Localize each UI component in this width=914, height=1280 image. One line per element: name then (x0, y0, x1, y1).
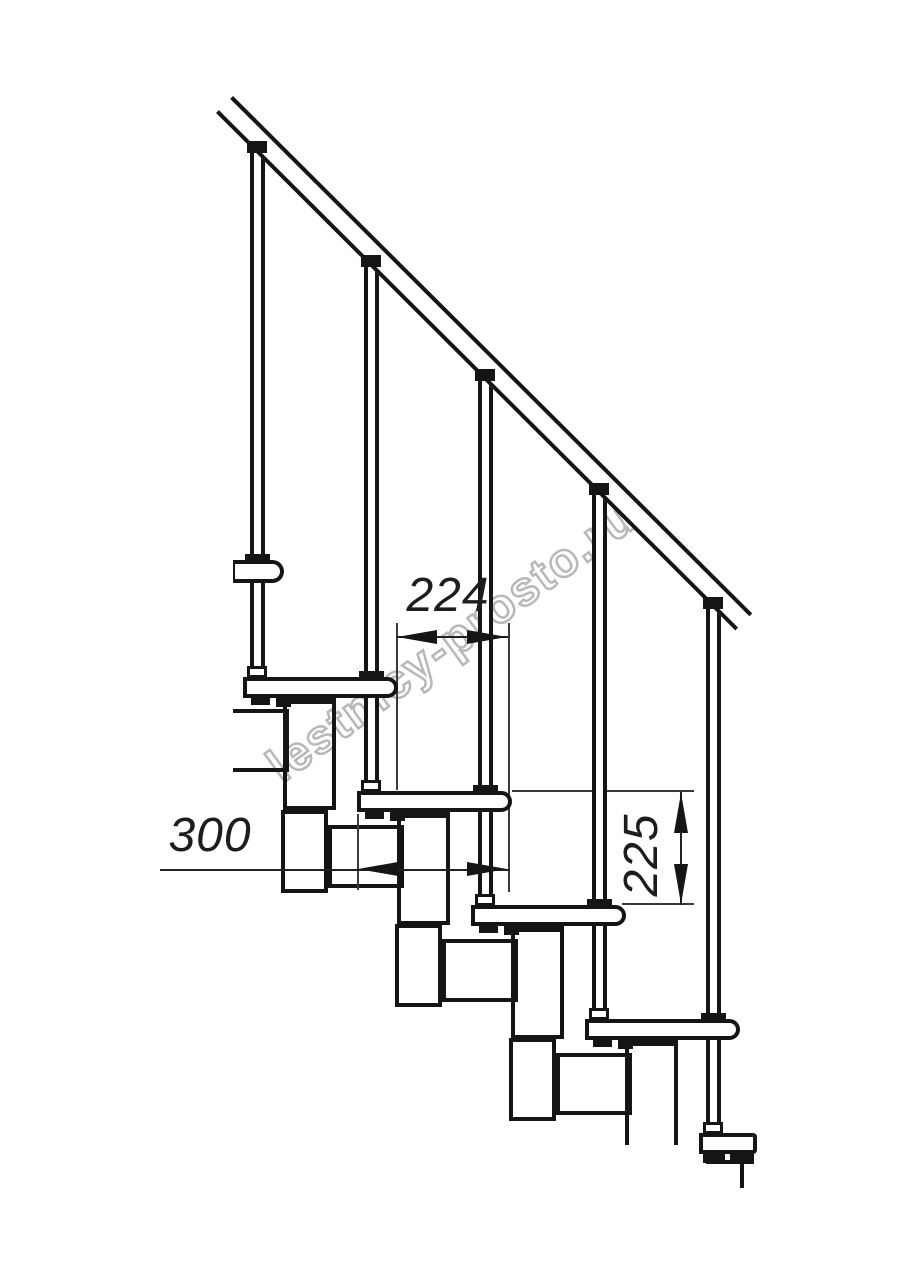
rail-connector (703, 597, 723, 609)
module-box (625, 1042, 678, 1145)
module-cut-line (740, 1160, 744, 1188)
baluster (478, 381, 493, 909)
tread-foot (276, 698, 291, 707)
tread (471, 905, 626, 926)
module-box (509, 1038, 556, 1121)
arrowhead-icon (467, 630, 507, 644)
rail-connector (361, 255, 381, 267)
bolt-collar (589, 1008, 609, 1020)
arrowhead-icon (467, 862, 507, 876)
tread (357, 791, 512, 812)
rail-connector (475, 369, 495, 381)
module-box (511, 928, 564, 1039)
tread (585, 1019, 740, 1040)
nose-collar (587, 899, 612, 906)
extension-line (396, 623, 398, 790)
module-box (283, 700, 336, 810)
tread-foot (593, 1040, 612, 1047)
extension-line (357, 814, 359, 890)
extension-line (508, 623, 510, 892)
dimension-label-riser-height: 225 (617, 805, 667, 905)
nose-collar (245, 554, 270, 561)
tread-foot (730, 1154, 754, 1164)
module-box (442, 939, 518, 1002)
module-box (556, 1053, 632, 1115)
nose-collar (701, 1013, 726, 1020)
tread-foot (504, 926, 519, 935)
dimension-label-tread-depth: 300 (155, 810, 265, 862)
bolt-collar (361, 780, 381, 792)
rail-connector (247, 141, 267, 153)
nose-collar (359, 671, 384, 678)
arrowhead-icon (358, 862, 398, 876)
dimension-line-300 (160, 869, 510, 871)
module-box (328, 825, 404, 888)
bolt-collar (247, 666, 267, 678)
tread-bottom-stub (699, 1133, 757, 1154)
tread-foot (390, 812, 405, 821)
bolt-collar (475, 894, 495, 906)
staircase-technical-drawing: lestnicy-prosto.ru (0, 0, 914, 1280)
baluster (592, 495, 607, 1023)
dimension-label-horizontal-step: 224 (398, 570, 498, 622)
baluster (250, 153, 265, 681)
tread (243, 677, 398, 698)
module-box (395, 924, 442, 1007)
rail-connector (589, 483, 609, 495)
baluster (364, 267, 379, 795)
tread-top-stub (233, 560, 284, 583)
nose-collar (473, 785, 498, 792)
module-box (233, 709, 289, 772)
baluster (706, 609, 721, 1137)
arrowhead-icon (674, 793, 688, 833)
tread-foot (365, 812, 384, 819)
tread-foot (703, 1154, 725, 1163)
tread-foot (618, 1040, 633, 1049)
tread-foot (479, 926, 498, 933)
bolt-collar (703, 1122, 723, 1134)
arrowhead-icon (397, 630, 437, 644)
tread-foot (251, 698, 270, 705)
arrowhead-icon (674, 864, 688, 904)
module-box (281, 810, 328, 893)
